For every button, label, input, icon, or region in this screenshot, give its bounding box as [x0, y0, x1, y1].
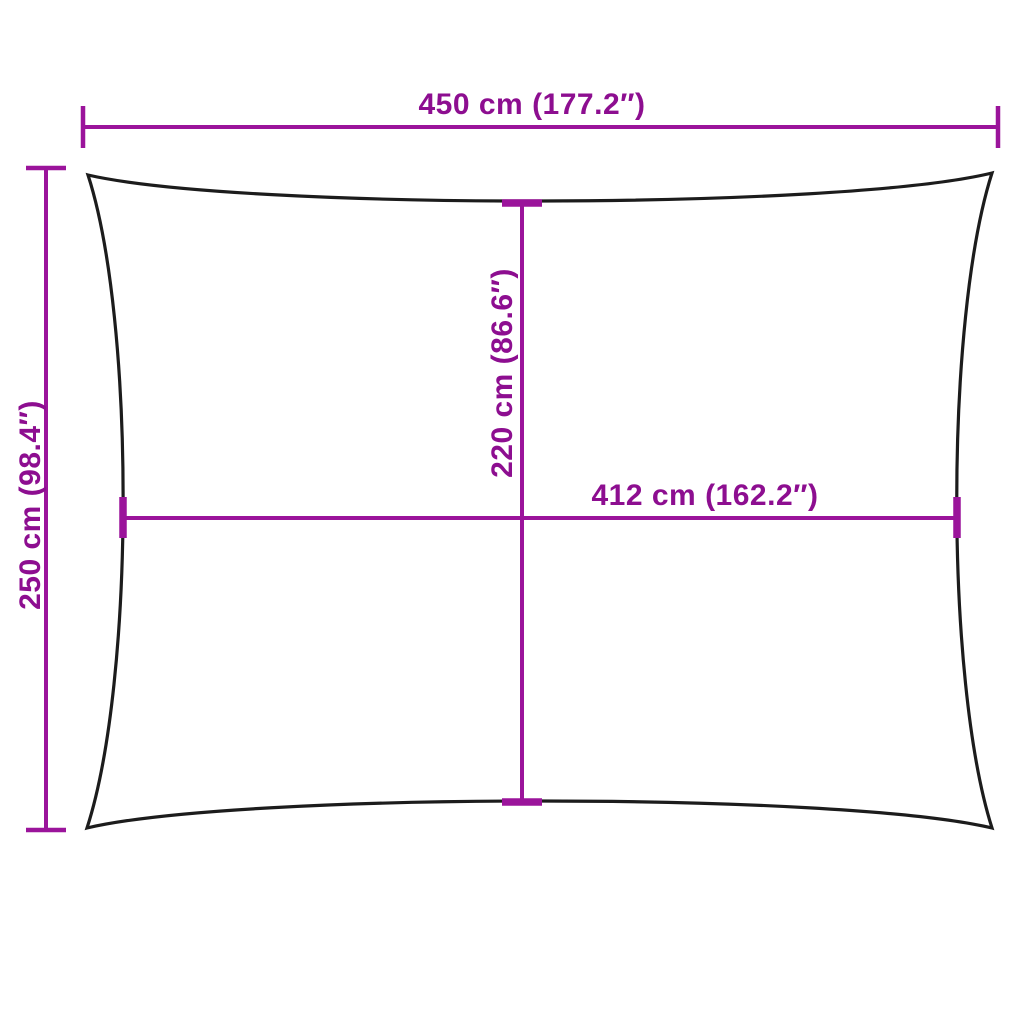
dimension-inner-vertical: 220 cm (86.6″) [486, 203, 542, 802]
inner-vertical-label: 220 cm (86.6″) [486, 268, 519, 478]
inner-horizontal-label: 412 cm (162.2″) [591, 479, 818, 512]
dimension-diagram: 450 cm (177.2″) 250 cm (98.4″) 220 cm (8… [0, 0, 1024, 1024]
dimension-overall-width: 450 cm (177.2″) [83, 88, 998, 148]
overall-width-label: 450 cm (177.2″) [418, 88, 645, 121]
overall-height-label: 250 cm (98.4″) [14, 400, 47, 610]
dimension-inner-horizontal: 412 cm (162.2″) [123, 479, 957, 538]
shade-sail-outline [87, 173, 992, 828]
dimension-overall-height: 250 cm (98.4″) [14, 168, 66, 830]
diagram-canvas: 450 cm (177.2″) 250 cm (98.4″) 220 cm (8… [0, 0, 1024, 1024]
